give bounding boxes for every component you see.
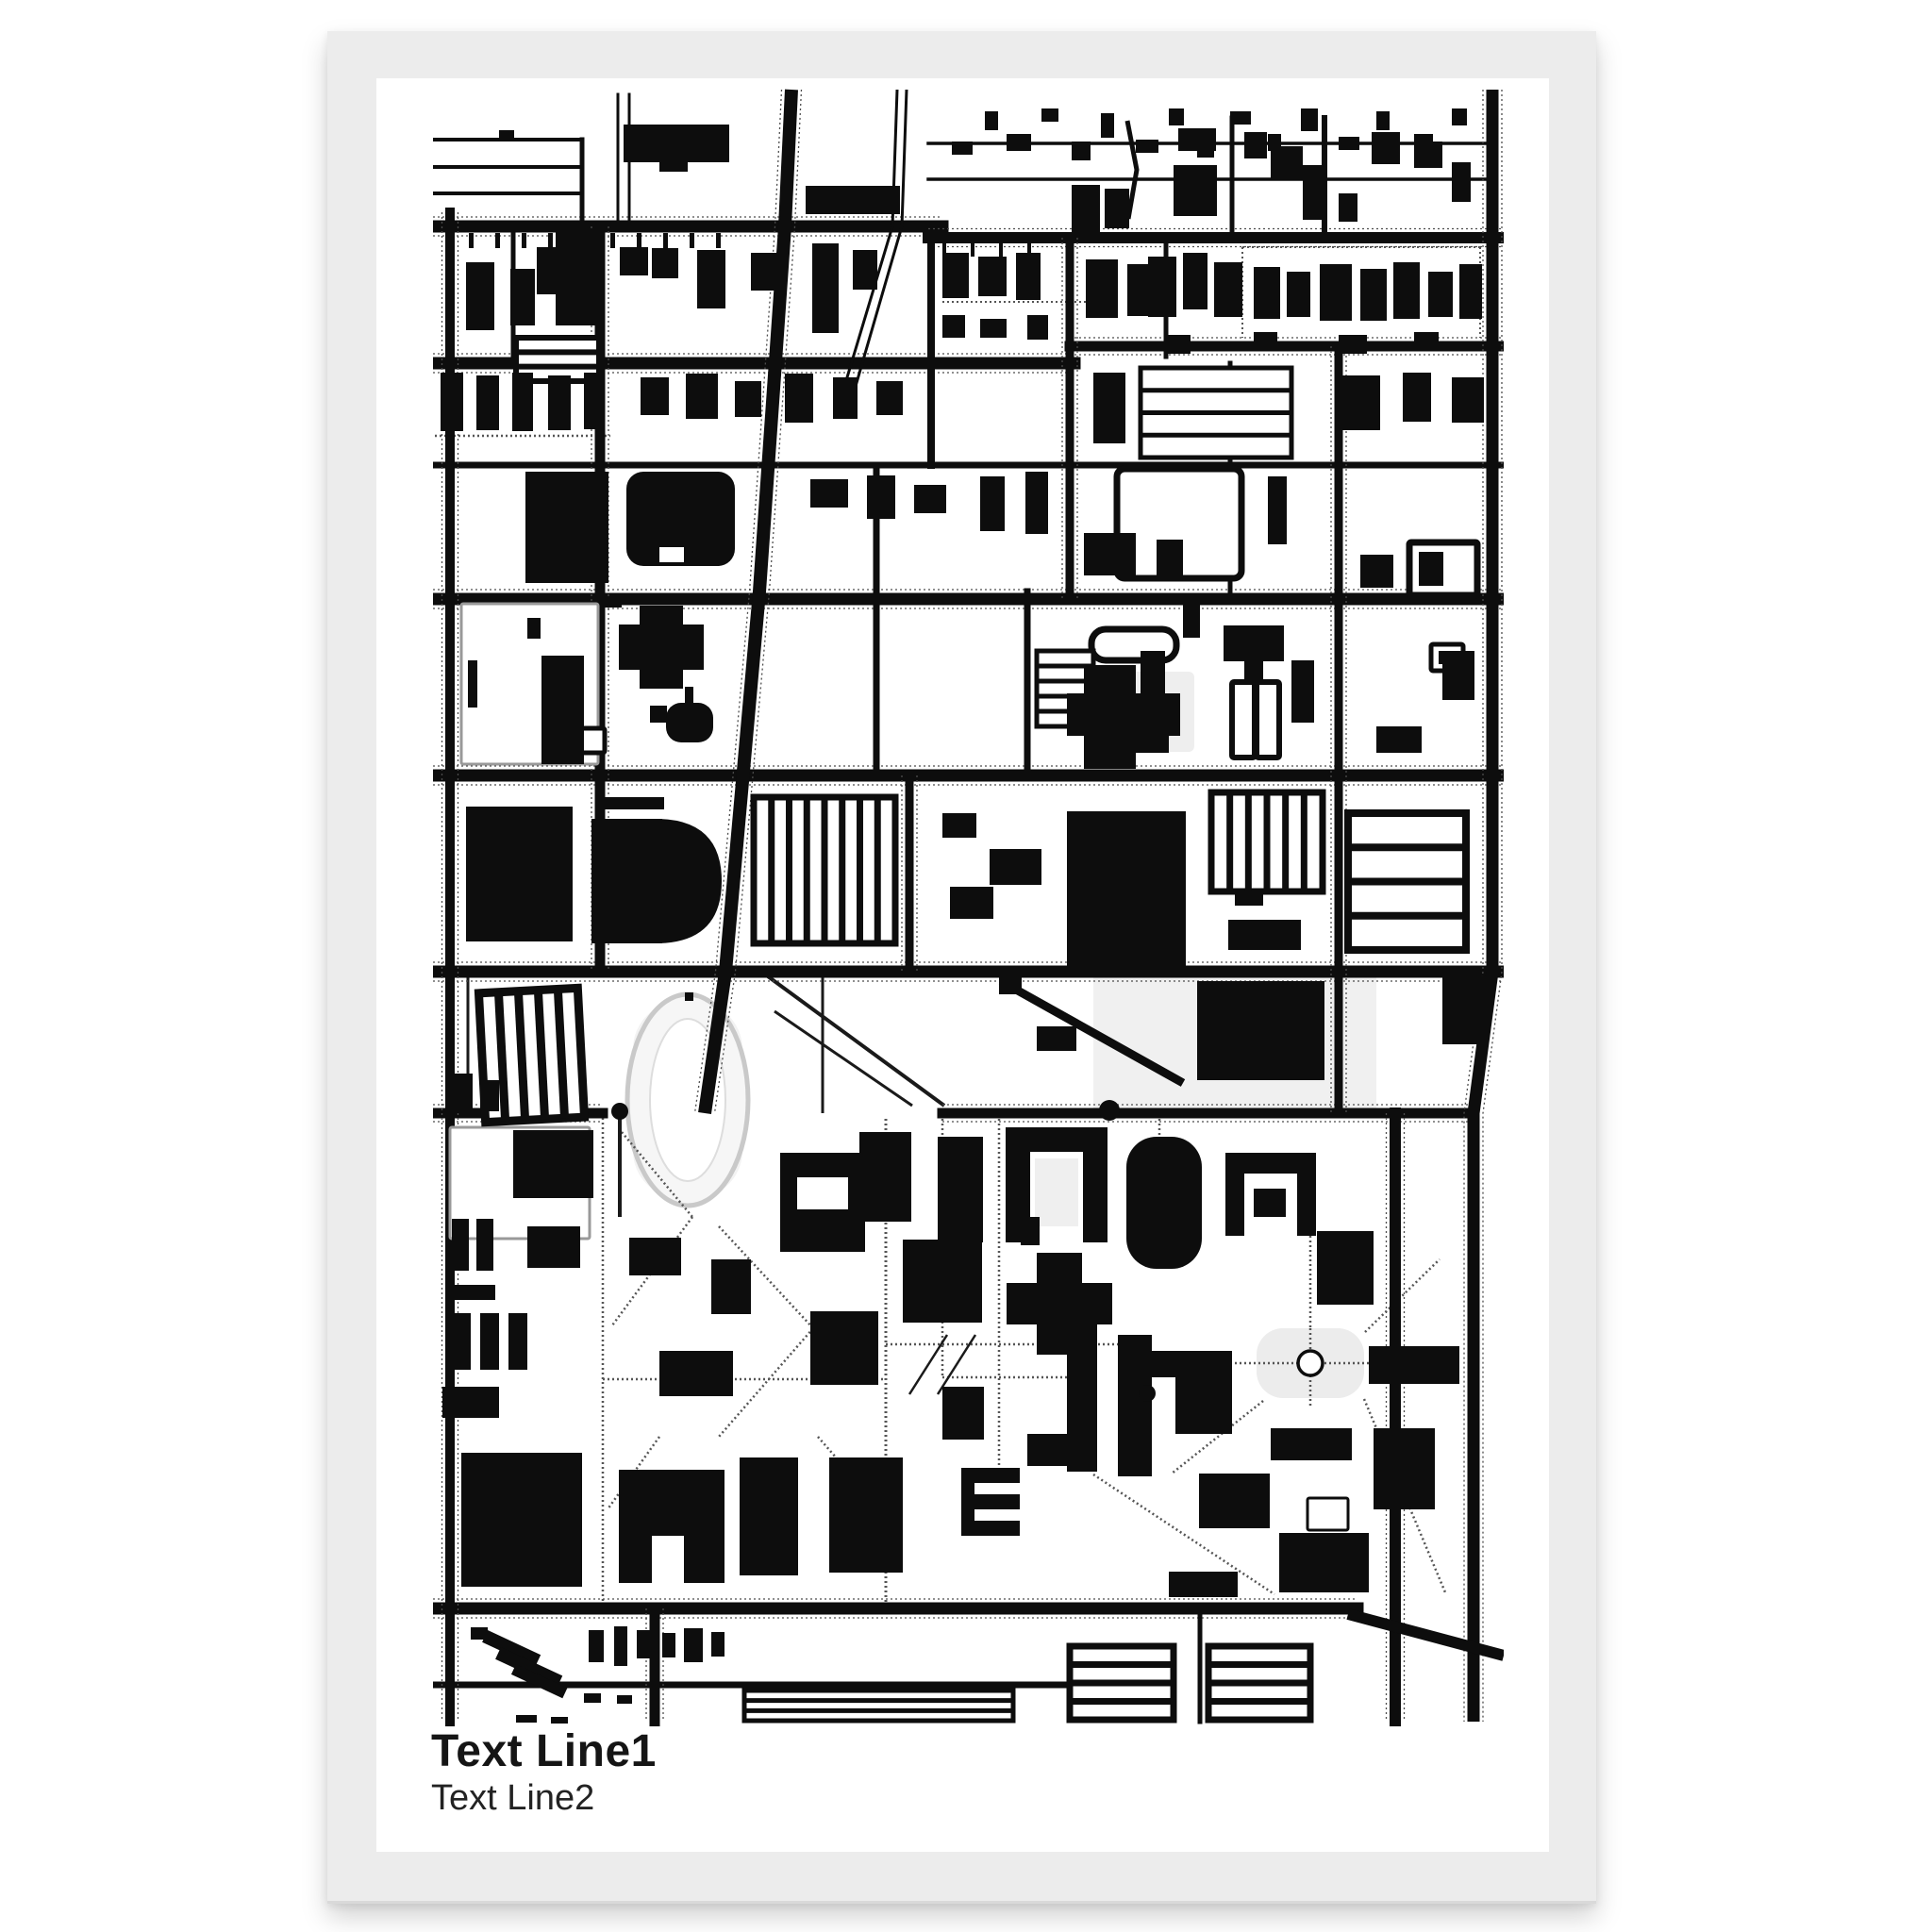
- caption-subtitle: Text Line2: [431, 1778, 1280, 1820]
- poster: Text Line1 Text Line2: [327, 31, 1596, 1904]
- city-map: [433, 85, 1504, 1726]
- caption-title: Text Line1: [431, 1727, 1280, 1776]
- map-svg: [433, 85, 1504, 1726]
- poster-paper: Text Line1 Text Line2: [376, 78, 1549, 1852]
- poster-caption: Text Line1 Text Line2: [431, 1727, 1280, 1820]
